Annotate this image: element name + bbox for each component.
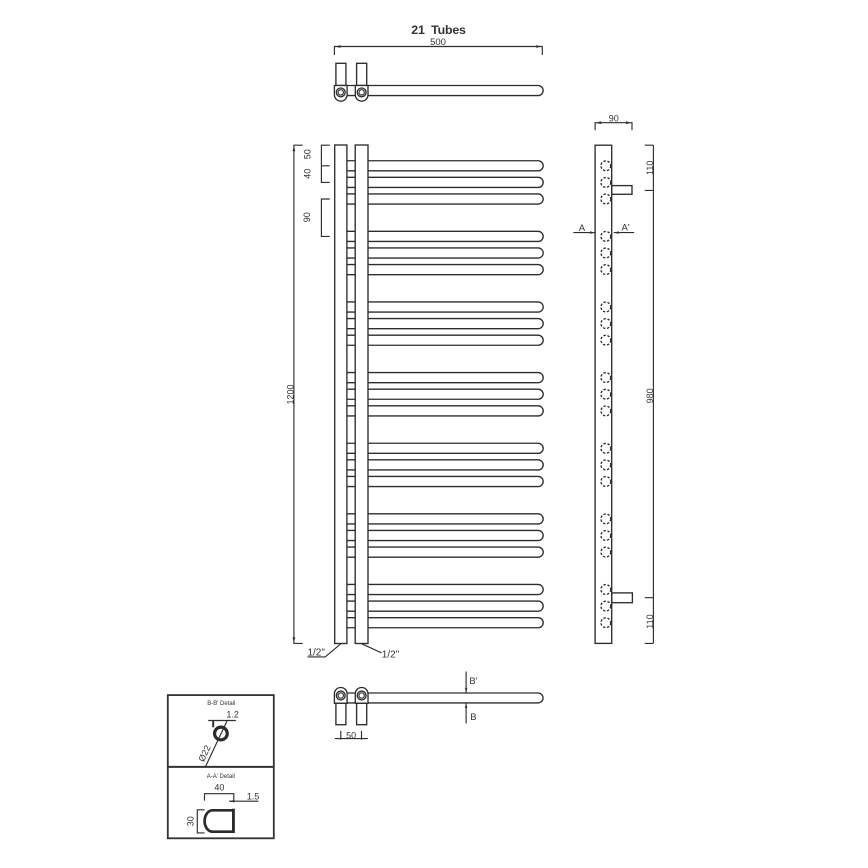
svg-text:90: 90 [302,212,312,222]
svg-text:A-A' Detail: A-A' Detail [207,774,235,780]
svg-text:30: 30 [186,816,196,826]
svg-text:B': B' [469,676,477,687]
svg-text:110: 110 [645,614,655,628]
svg-text:50: 50 [346,731,356,741]
svg-text:1.2: 1.2 [226,710,239,720]
svg-text:21 Tubes: 21 Tubes [411,23,466,37]
svg-text:40: 40 [303,169,313,179]
svg-text:1.5: 1.5 [247,791,260,801]
svg-text:90: 90 [609,114,619,124]
svg-text:A: A [579,223,586,234]
svg-text:B: B [470,712,476,723]
svg-text:1/2": 1/2" [307,648,325,659]
svg-text:B-B' Detail: B-B' Detail [207,701,235,707]
svg-text:1200: 1200 [286,384,296,404]
svg-text:50: 50 [303,149,313,159]
svg-text:980: 980 [645,388,655,403]
svg-text:A': A' [622,223,630,234]
svg-text:40: 40 [214,782,224,792]
svg-text:1/2": 1/2" [382,650,400,661]
svg-text:110: 110 [645,161,655,175]
